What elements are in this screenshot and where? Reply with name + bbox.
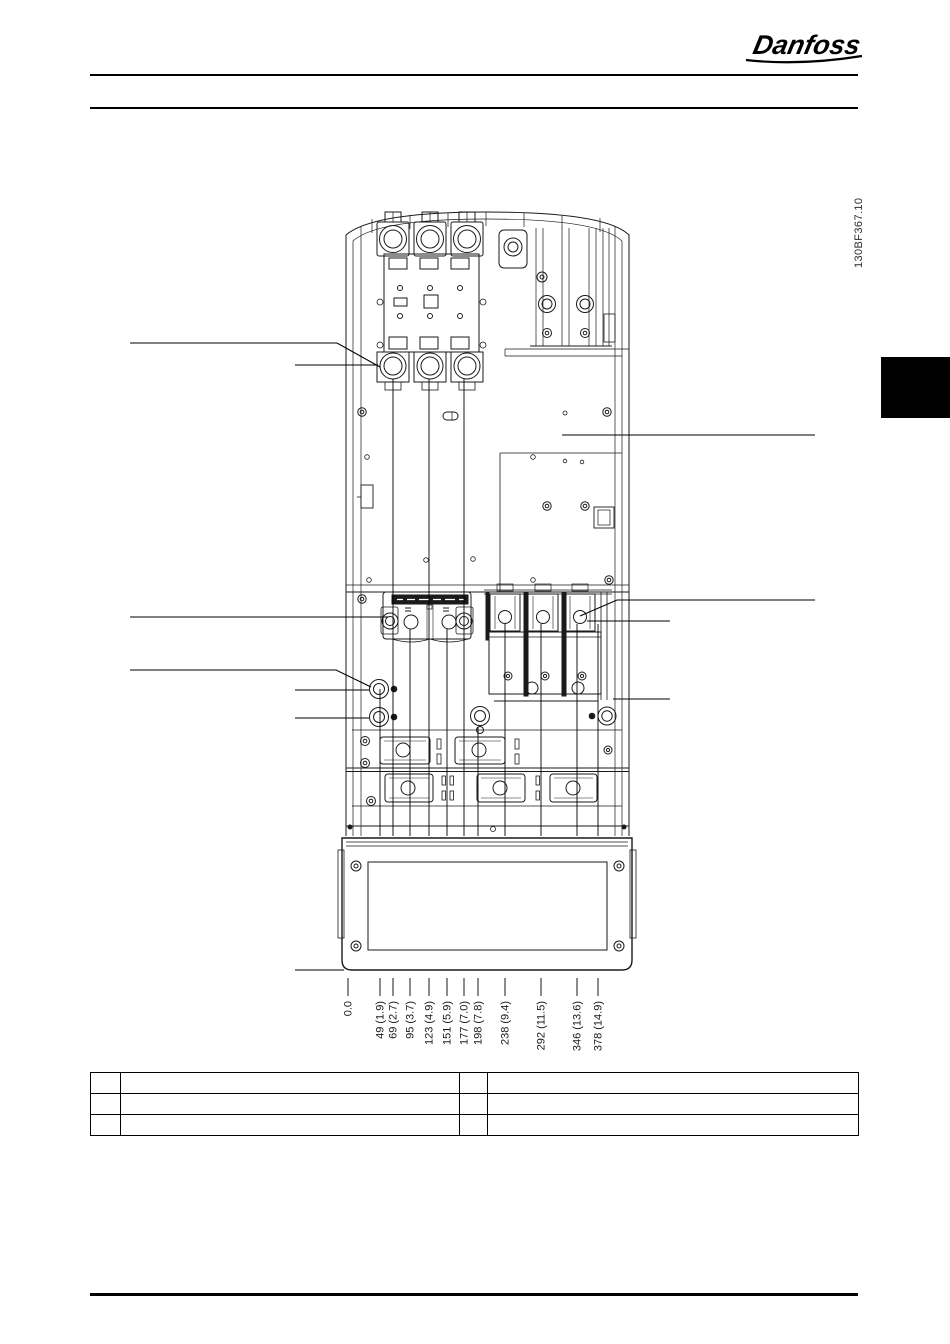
dimension-label: 95 (3.7): [405, 1001, 417, 1039]
mounting-plate: [357, 408, 622, 603]
legend-cell: [91, 1115, 121, 1136]
dc-terminal-block: [381, 592, 473, 642]
dimension-label: 292 (11.5): [536, 1001, 548, 1050]
cable-entry-band: [346, 730, 629, 832]
gland-plate-box: [338, 838, 636, 970]
legend-cell: [488, 1094, 859, 1115]
legend-table: [90, 1072, 859, 1136]
dimension-label: 49 (1.9): [375, 1001, 387, 1039]
legend-cell: [460, 1115, 488, 1136]
legend-cell: [460, 1073, 488, 1094]
legend-row: [91, 1073, 859, 1094]
contactor-assembly: [377, 212, 486, 390]
legend-row: [91, 1115, 859, 1136]
legend-row: [91, 1094, 859, 1115]
legend-cell: [121, 1115, 460, 1136]
legend-cell: [488, 1073, 859, 1094]
dimension-label: 123 (4.9): [424, 1001, 436, 1045]
legend-cell: [488, 1115, 859, 1136]
legend-cell: [91, 1073, 121, 1094]
legend-cell: [460, 1094, 488, 1115]
legend-cell: [121, 1094, 460, 1115]
fuse-assembly: [484, 584, 612, 701]
dimension-label: 346 (13.6): [572, 1001, 584, 1051]
dimension-label: 177 (7.0): [459, 1001, 471, 1045]
dimension-label: 238 (9.4): [500, 1001, 512, 1045]
dimension-label: 378 (14.9): [593, 1001, 605, 1051]
document-page: Danfoss 130BF367.10: [0, 0, 950, 1344]
dimension-label: 69 (2.7): [388, 1001, 400, 1039]
technical-diagram: 0.049 (1.9)69 (2.7)95 (3.7)123 (4.9)151 …: [0, 0, 950, 1344]
legend-cell: [121, 1073, 460, 1094]
dimension-label: 151 (5.9): [442, 1001, 454, 1045]
cabinet-outline: [346, 212, 629, 836]
legend-table-body: [91, 1073, 859, 1136]
cable-glands: [370, 680, 617, 734]
legend-cell: [91, 1094, 121, 1115]
dimension-label: 0.0: [343, 1001, 355, 1016]
busbar-area: [499, 228, 629, 356]
callout-lines: [130, 343, 815, 970]
dimension-label: 198 (7.8): [473, 1001, 485, 1045]
